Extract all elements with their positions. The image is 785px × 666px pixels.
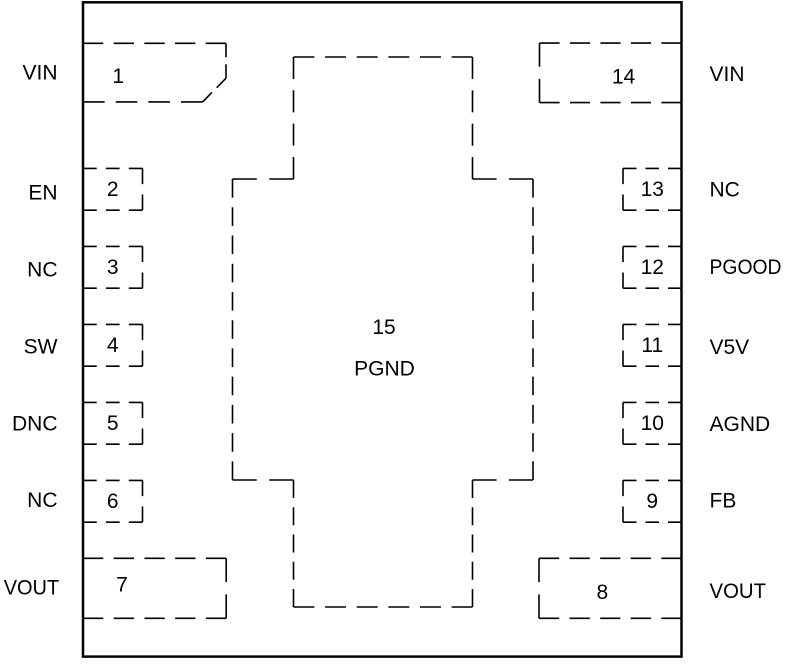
svg-text:12: 12 (641, 256, 664, 279)
svg-text:PGOOD: PGOOD (710, 256, 782, 279)
svg-text:DNC: DNC (12, 412, 58, 435)
svg-text:15: 15 (372, 316, 395, 339)
svg-text:7: 7 (116, 574, 128, 597)
svg-text:VOUT: VOUT (4, 576, 60, 599)
svg-text:EN: EN (28, 182, 57, 205)
svg-text:VIN: VIN (22, 61, 57, 84)
svg-text:SW: SW (24, 336, 58, 359)
svg-text:8: 8 (597, 581, 609, 604)
svg-text:13: 13 (641, 178, 664, 201)
svg-text:10: 10 (641, 412, 664, 435)
svg-text:FB: FB (710, 490, 737, 513)
svg-text:9: 9 (646, 490, 658, 513)
svg-text:NC: NC (27, 489, 57, 512)
svg-text:1: 1 (112, 65, 124, 88)
svg-text:2: 2 (107, 178, 119, 201)
svg-text:VOUT: VOUT (710, 580, 767, 603)
svg-text:AGND: AGND (710, 413, 771, 436)
svg-text:V5V: V5V (710, 336, 750, 359)
svg-text:5: 5 (107, 412, 119, 435)
svg-text:6: 6 (107, 490, 119, 513)
svg-text:NC: NC (27, 259, 57, 282)
svg-text:PGND: PGND (354, 357, 415, 380)
svg-text:11: 11 (641, 334, 663, 357)
svg-text:4: 4 (107, 334, 119, 357)
svg-text:3: 3 (107, 256, 119, 279)
svg-text:VIN: VIN (710, 63, 745, 86)
svg-text:NC: NC (710, 179, 740, 202)
svg-text:14: 14 (612, 66, 636, 89)
